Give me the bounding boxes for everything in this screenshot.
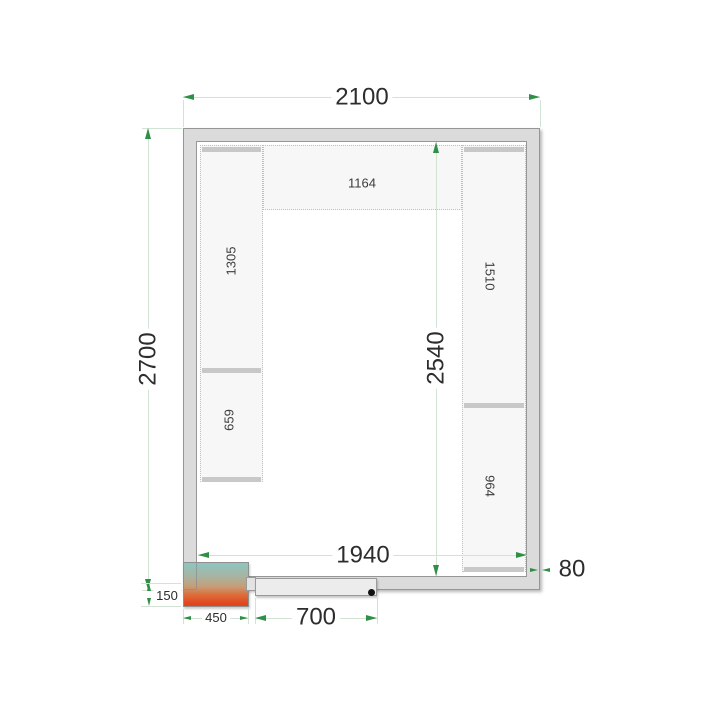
dim-arrow-up-icon (145, 128, 151, 139)
dim-arrow-left-icon (183, 616, 191, 620)
dim-inner-width-label: 1940 (332, 542, 393, 567)
shelf-left-divider-bar (202, 368, 261, 373)
dim-wall-thickness-label: 80 (555, 556, 590, 581)
shelf-right (462, 145, 526, 572)
dim-arrow-left-icon (542, 568, 550, 572)
dim-arrow-up-icon (147, 583, 151, 591)
dim-ext-outer-width-right (540, 100, 541, 127)
dim-arrow-up-icon (433, 142, 439, 153)
dim-arrow-right-icon (516, 552, 527, 558)
dim-unit-depth-label: 150 (153, 589, 181, 603)
dim-arrow-down-icon (433, 565, 439, 576)
dim-ext-unit-depth-bottom (141, 606, 181, 607)
shelf-right-upper-length-label: 1510 (484, 262, 497, 291)
dim-door-width-label: 700 (292, 604, 340, 629)
dim-outer-width-label: 2100 (331, 84, 392, 109)
shelf-top-length-label: 1164 (348, 177, 376, 190)
dim-outer-depth-label: 2700 (135, 328, 160, 389)
door-knob-icon (368, 589, 375, 596)
dim-ext-outer-width-left (183, 100, 184, 127)
shelf-left (200, 145, 263, 482)
shelf-left-end-bar (202, 147, 261, 152)
dim-ext-unit-right (248, 609, 249, 624)
shelf-right-lower-length-label: 964 (484, 475, 497, 497)
dim-arrow-right-icon (240, 616, 248, 620)
dim-ext-door-right (377, 598, 378, 624)
dim-inner-depth-label: 2540 (423, 327, 448, 388)
dim-arrow-left-icon (198, 552, 209, 558)
shelf-left-bottom-bar (202, 477, 261, 482)
shelf-right-end-bar (464, 147, 524, 152)
shelf-left-upper-length-label: 1305 (225, 247, 238, 276)
condensing-unit (183, 562, 249, 607)
dim-arrow-down-icon (147, 598, 151, 606)
shelf-right-bottom-bar (464, 567, 524, 572)
wall-corner-line-vertical (196, 562, 197, 589)
dim-unit-width-label: 450 (202, 611, 230, 625)
dim-arrow-left-icon (255, 615, 266, 621)
wall-corner-line-horizontal (184, 589, 196, 590)
door-leaf (255, 578, 377, 596)
dim-arrow-right-icon (529, 94, 540, 100)
shelf-right-divider-bar (464, 403, 524, 408)
shelf-left-lower-length-label: 659 (223, 409, 236, 431)
dim-arrow-left-icon (183, 94, 194, 100)
cold-room-floor-plan: 1164 1305 659 1510 964 2100 2700 2540 19… (0, 0, 720, 720)
dim-arrow-right-icon (366, 615, 377, 621)
dim-arrow-right-icon (530, 568, 538, 572)
